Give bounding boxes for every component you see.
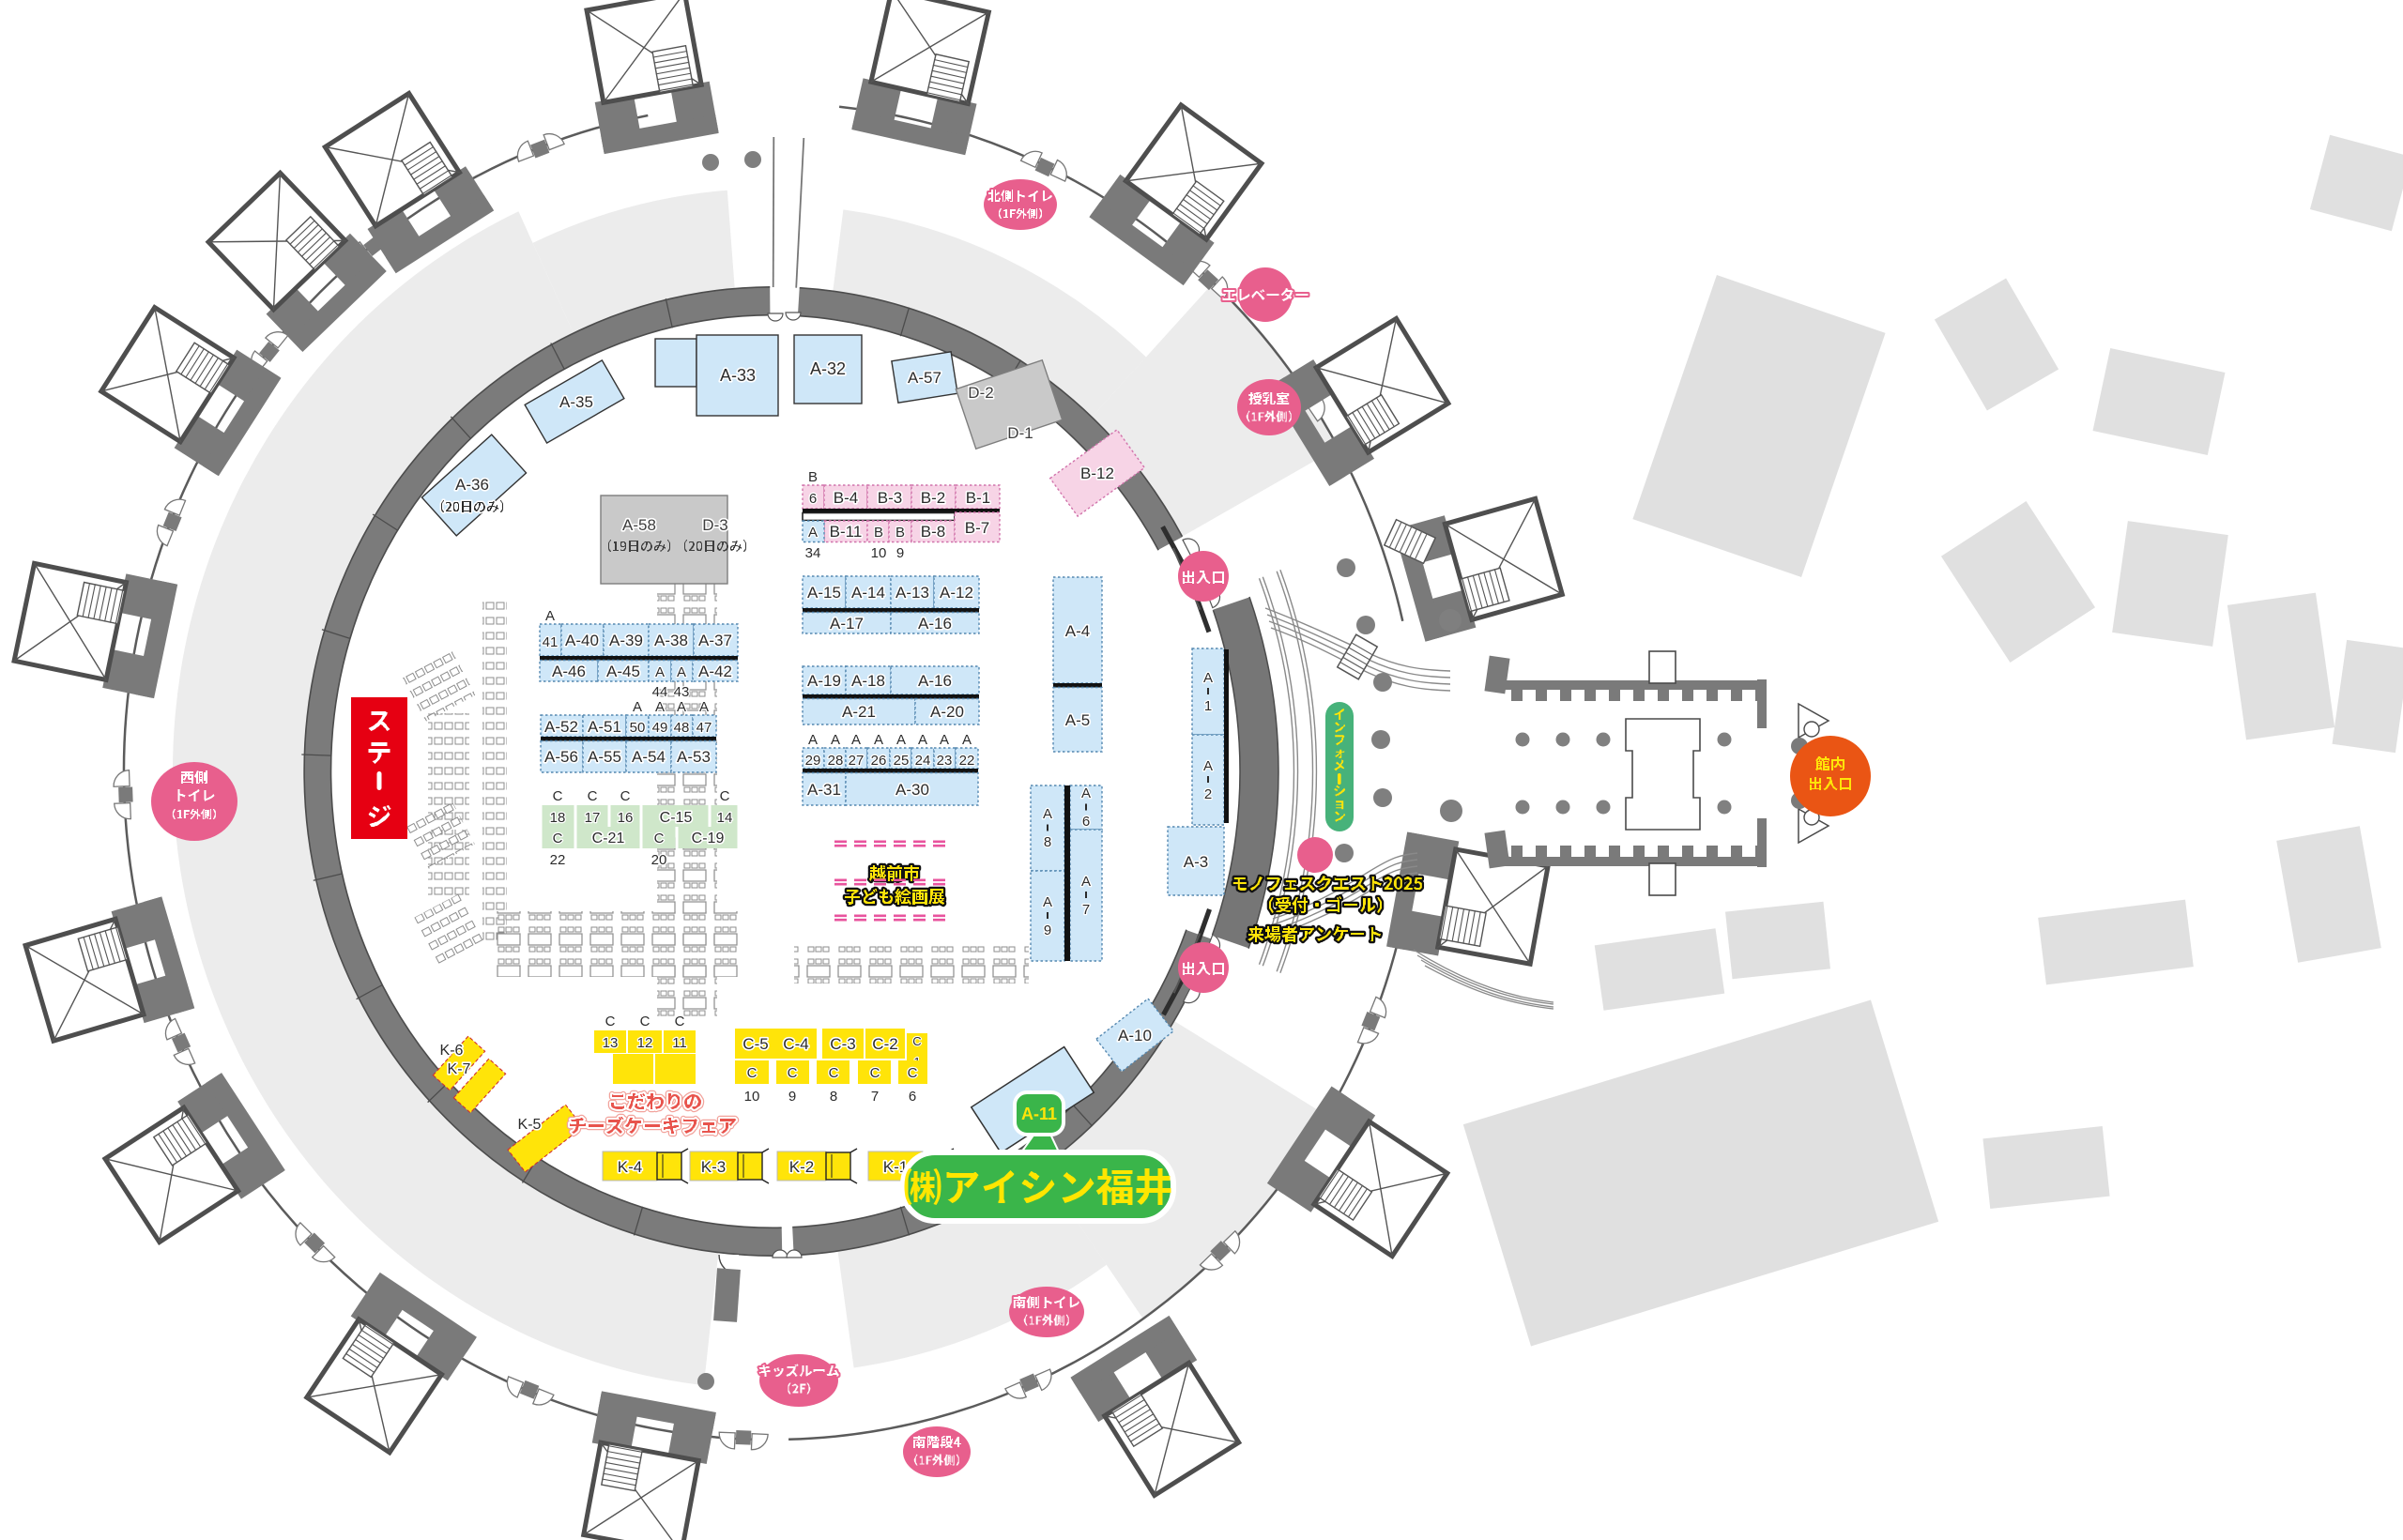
svg-text:A-32: A-32 xyxy=(810,359,846,378)
svg-text:50: 50 xyxy=(630,720,646,736)
svg-text:A: A xyxy=(655,664,665,680)
svg-text:A: A xyxy=(808,732,818,748)
svg-text:A-45: A-45 xyxy=(606,663,640,680)
svg-text:K-7: K-7 xyxy=(448,1061,471,1077)
svg-text:A: A xyxy=(677,699,686,715)
svg-text:24: 24 xyxy=(915,753,931,769)
svg-text:C: C xyxy=(908,1065,918,1081)
svg-text:K-4: K-4 xyxy=(618,1158,642,1176)
svg-text:C-3: C-3 xyxy=(830,1035,855,1053)
svg-text:A-4: A-4 xyxy=(1065,622,1090,640)
svg-text:A: A xyxy=(874,732,883,748)
svg-text:B-3: B-3 xyxy=(878,489,902,507)
svg-text:A-21: A-21 xyxy=(842,703,876,721)
svg-text:A-3: A-3 xyxy=(1184,853,1208,871)
svg-text:12: 12 xyxy=(637,1035,653,1051)
svg-text:9: 9 xyxy=(788,1089,796,1105)
svg-text:A-31: A-31 xyxy=(807,781,841,799)
svg-text:A: A xyxy=(962,732,972,748)
svg-text:6: 6 xyxy=(1082,814,1090,830)
svg-text:C: C xyxy=(654,831,665,846)
svg-text:A-46: A-46 xyxy=(552,663,586,680)
svg-text:22: 22 xyxy=(959,753,975,769)
svg-text:27: 27 xyxy=(849,753,865,769)
svg-text:A: A xyxy=(1203,758,1213,774)
svg-text:B-12: B-12 xyxy=(1080,465,1114,482)
svg-text:C: C xyxy=(605,1014,616,1029)
svg-text:A: A xyxy=(918,732,927,748)
svg-text:B-8: B-8 xyxy=(921,523,945,541)
svg-text:16: 16 xyxy=(618,810,634,826)
svg-text:C: C xyxy=(620,788,631,804)
svg-text:8: 8 xyxy=(1044,834,1051,850)
svg-text:A-54: A-54 xyxy=(632,748,666,766)
svg-text:C: C xyxy=(720,788,730,804)
svg-text:K-3: K-3 xyxy=(701,1158,726,1176)
svg-text:A-42: A-42 xyxy=(698,663,732,680)
svg-text:49: 49 xyxy=(652,720,668,736)
svg-text:A-57: A-57 xyxy=(908,369,941,387)
svg-text:8: 8 xyxy=(830,1089,837,1105)
svg-text:A-37: A-37 xyxy=(698,632,732,649)
svg-text:A-33: A-33 xyxy=(720,366,756,385)
svg-text:A-10: A-10 xyxy=(1118,1027,1152,1044)
svg-text:13: 13 xyxy=(603,1035,619,1051)
svg-text:A-30: A-30 xyxy=(895,781,929,799)
svg-text:A: A xyxy=(655,699,665,715)
svg-text:A: A xyxy=(808,525,818,541)
svg-text:A-40: A-40 xyxy=(565,632,599,649)
svg-text:C-21: C-21 xyxy=(592,831,625,846)
svg-text:C: C xyxy=(870,1065,880,1081)
svg-text:9: 9 xyxy=(1044,922,1051,938)
svg-text:A: A xyxy=(896,732,906,748)
svg-text:18: 18 xyxy=(550,810,566,826)
svg-text:A-35: A-35 xyxy=(559,393,593,411)
svg-text:A-19: A-19 xyxy=(807,672,841,690)
svg-text:10: 10 xyxy=(744,1089,760,1105)
svg-text:1: 1 xyxy=(1204,698,1212,714)
svg-text:9: 9 xyxy=(896,545,904,561)
svg-text:44: 44 xyxy=(652,684,668,700)
svg-text:A-11: A-11 xyxy=(1021,1105,1057,1123)
svg-text:47: 47 xyxy=(696,720,712,736)
svg-text:D-1: D-1 xyxy=(1007,424,1033,442)
svg-text:B-11: B-11 xyxy=(830,523,863,541)
svg-text:A-53: A-53 xyxy=(677,748,711,766)
svg-text:A: A xyxy=(851,732,861,748)
svg-text:B: B xyxy=(874,525,883,541)
svg-text:A-39: A-39 xyxy=(609,632,643,649)
svg-text:A-16: A-16 xyxy=(918,672,952,690)
svg-text:A-15: A-15 xyxy=(807,584,841,602)
svg-text:C-2: C-2 xyxy=(872,1035,897,1053)
svg-text:B: B xyxy=(895,525,905,541)
svg-text:C-4: C-4 xyxy=(783,1035,808,1053)
svg-text:A: A xyxy=(677,664,686,680)
svg-text:A: A xyxy=(940,732,949,748)
svg-text:20: 20 xyxy=(651,852,667,868)
svg-text:B-7: B-7 xyxy=(965,519,989,537)
svg-text:A-51: A-51 xyxy=(588,718,621,736)
svg-text:A-17: A-17 xyxy=(830,615,864,633)
svg-text:A-12: A-12 xyxy=(940,584,973,602)
svg-text:D-3: D-3 xyxy=(702,516,727,534)
svg-text:A: A xyxy=(1081,785,1091,801)
svg-text:A-36: A-36 xyxy=(455,476,489,494)
svg-text:A-38: A-38 xyxy=(654,632,688,649)
svg-text:29: 29 xyxy=(805,753,821,769)
svg-text:23: 23 xyxy=(937,753,953,769)
svg-text:A-18: A-18 xyxy=(851,672,885,690)
svg-text:48: 48 xyxy=(674,720,690,736)
svg-text:A-14: A-14 xyxy=(851,584,885,602)
svg-text:C-5: C-5 xyxy=(742,1035,768,1053)
svg-text:B: B xyxy=(808,469,818,485)
svg-text:43: 43 xyxy=(674,684,690,700)
svg-text:A-5: A-5 xyxy=(1065,711,1090,729)
svg-text:A-58: A-58 xyxy=(622,516,656,534)
svg-text:K-5: K-5 xyxy=(518,1117,542,1133)
svg-text:A: A xyxy=(1203,670,1213,686)
svg-text:11: 11 xyxy=(672,1035,687,1051)
svg-text:6: 6 xyxy=(809,491,817,507)
svg-text:2: 2 xyxy=(1204,786,1212,802)
svg-text:C: C xyxy=(675,1014,685,1029)
svg-text:D-2: D-2 xyxy=(968,384,993,402)
svg-text:14: 14 xyxy=(717,810,733,826)
svg-text:A-13: A-13 xyxy=(895,584,929,602)
svg-text:22: 22 xyxy=(550,852,566,868)
svg-text:A: A xyxy=(545,608,555,624)
svg-text:A-16: A-16 xyxy=(918,615,952,633)
svg-text:7: 7 xyxy=(871,1089,879,1105)
svg-text:C: C xyxy=(912,1034,921,1048)
svg-text:A-56: A-56 xyxy=(544,748,578,766)
svg-text:C: C xyxy=(747,1065,758,1081)
svg-text:25: 25 xyxy=(894,753,910,769)
svg-text:A: A xyxy=(831,732,840,748)
svg-text:A: A xyxy=(1043,806,1052,822)
svg-text:B-1: B-1 xyxy=(966,489,990,507)
svg-text:41: 41 xyxy=(543,634,559,650)
svg-text:K-2: K-2 xyxy=(789,1158,814,1176)
svg-text:7: 7 xyxy=(1082,902,1090,918)
svg-text:A-52: A-52 xyxy=(544,718,578,736)
svg-text:C: C xyxy=(588,788,598,804)
svg-text:K-6: K-6 xyxy=(440,1043,464,1059)
svg-text:A: A xyxy=(1081,874,1091,890)
svg-text:A: A xyxy=(699,699,709,715)
svg-text:C: C xyxy=(788,1065,798,1081)
svg-text:C-15: C-15 xyxy=(660,810,693,826)
svg-text:C: C xyxy=(553,831,563,846)
svg-text:C: C xyxy=(829,1065,839,1081)
svg-text:10: 10 xyxy=(871,545,887,561)
svg-text:A-20: A-20 xyxy=(930,703,964,721)
svg-text:26: 26 xyxy=(871,753,887,769)
svg-text:28: 28 xyxy=(828,753,844,769)
svg-text:A: A xyxy=(1043,894,1052,910)
svg-text:17: 17 xyxy=(585,810,601,826)
svg-text:A: A xyxy=(633,699,642,715)
svg-text:B-2: B-2 xyxy=(921,489,945,507)
svg-text:34: 34 xyxy=(805,545,821,561)
svg-text:C-19: C-19 xyxy=(692,831,725,846)
svg-text:C: C xyxy=(553,788,563,804)
svg-text:B-4: B-4 xyxy=(834,489,858,507)
svg-text:C: C xyxy=(640,1014,650,1029)
svg-text:A-55: A-55 xyxy=(588,748,621,766)
svg-text:6: 6 xyxy=(909,1089,916,1105)
